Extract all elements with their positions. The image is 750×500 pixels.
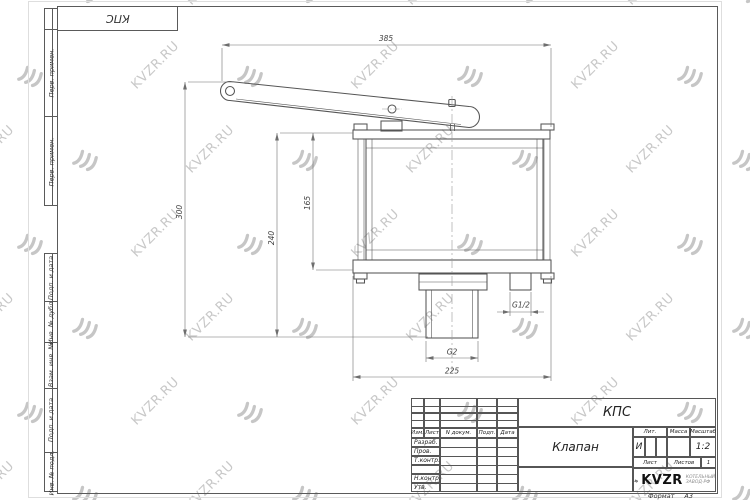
margin-label: Инв. № дубл. bbox=[47, 299, 55, 343]
tb-massa-value bbox=[667, 437, 690, 457]
dim-height-total: 300 bbox=[175, 205, 184, 220]
margin-label: Перв. примен. bbox=[47, 48, 55, 97]
drawing-sheet: KVZR.RUKVZR.RUKVZR.RUKVZR.RUKVZR.RUKVZR.… bbox=[0, 0, 750, 500]
tb-col-podp: Подп. bbox=[477, 428, 497, 438]
tb-rule bbox=[440, 483, 518, 484]
dim-flange-width: 225 bbox=[445, 367, 460, 376]
bolt-head-right bbox=[541, 124, 554, 130]
tb-rule bbox=[411, 406, 518, 414]
bolt-nut-left bbox=[354, 273, 367, 279]
margin-label: Перв. примен. bbox=[47, 137, 55, 186]
tb-row-utv: Утв. bbox=[411, 483, 440, 492]
dim-height-to-outlet: 240 bbox=[267, 231, 276, 246]
lever-hole bbox=[226, 87, 235, 96]
tb-list-label: Лист bbox=[633, 457, 667, 468]
tb-empty bbox=[518, 467, 633, 492]
tb-rule bbox=[411, 413, 518, 421]
bolt-head-left bbox=[354, 124, 367, 130]
tb-empty bbox=[645, 437, 656, 457]
margin-cell-empty bbox=[45, 9, 57, 30]
centerlines bbox=[382, 96, 452, 372]
tb-listov-label: Листов bbox=[667, 457, 701, 468]
dimensions bbox=[183, 43, 551, 381]
tb-row-nkontr: Н.контр. bbox=[411, 474, 440, 483]
margin-label: Взам. инв. № bbox=[47, 343, 55, 387]
kvzr-logo-icon bbox=[634, 473, 638, 488]
tb-lit-value: И bbox=[633, 437, 645, 457]
kvzr-logo-subline2: ЗАВОД-РФ bbox=[686, 480, 710, 485]
margin-cell-podp-data-2: Подп. и дата bbox=[45, 388, 57, 453]
margin-label: Подп. и дата bbox=[47, 398, 55, 442]
tb-designation: КПС bbox=[518, 398, 716, 427]
tb-row-blank bbox=[411, 465, 440, 474]
tb-company-cell: KVZR КОТЕЛЬНЫЙ ЗАВОД-РФ bbox=[633, 468, 716, 492]
bolt-tip-right bbox=[544, 279, 552, 283]
tb-massa-label: Масса bbox=[667, 427, 690, 437]
margin-cell-podp-data-1: Подп. и дата bbox=[45, 254, 57, 302]
margin-label: Подп. и дата bbox=[47, 255, 55, 299]
title-block: Изм. Лист N докум. Подп. Дата Разраб. Пр… bbox=[411, 398, 716, 492]
margin-label: Инв. № подл. bbox=[47, 450, 55, 495]
dim-drain-thread: G1/2 bbox=[512, 301, 530, 310]
corner-designation-stamp: КПС bbox=[57, 6, 178, 31]
tb-part-name: Клапан bbox=[518, 427, 633, 467]
format-note: Формат А3 bbox=[648, 492, 693, 500]
lever-inner-edge bbox=[236, 99, 461, 125]
valve-body bbox=[366, 139, 543, 260]
kvzr-logo-subline1: КОТЕЛЬНЫЙ bbox=[686, 475, 715, 480]
tb-masshtab-value: 1:2 bbox=[690, 437, 716, 457]
drain-pipe-g12 bbox=[510, 273, 531, 290]
kvzr-logo-text: KVZR bbox=[641, 473, 683, 488]
tb-row-prov: Пров. bbox=[411, 447, 440, 456]
valve-parts bbox=[221, 82, 555, 339]
lever-arm bbox=[221, 82, 480, 128]
margin-cell-perv-primen-1: Перв. примен. bbox=[45, 29, 57, 117]
tb-rule bbox=[440, 465, 518, 466]
format-value: А3 bbox=[684, 492, 693, 500]
tb-empty bbox=[656, 437, 667, 457]
tb-col-list: Лист bbox=[424, 428, 440, 438]
dimension-labels: 385 300 240 165 G2 225 G1/2 bbox=[175, 34, 530, 376]
tb-col-data: Дата bbox=[497, 428, 518, 438]
margin-cell-inv-podl: Инв. № подл. bbox=[45, 452, 57, 493]
corner-designation-text: КПС bbox=[106, 12, 130, 25]
tb-rule bbox=[440, 447, 518, 448]
tb-lit-label: Лит. bbox=[633, 427, 667, 437]
tb-row-razrab: Разраб. bbox=[411, 438, 440, 447]
margin-strip-top: Перв. примен. Перв. примен. bbox=[44, 8, 58, 206]
margin-cell-inv-dubl: Инв. № дубл. bbox=[45, 301, 57, 343]
tb-col-ndokum: N докум. bbox=[440, 428, 477, 438]
bolt-nut-right bbox=[541, 273, 554, 279]
margin-cell-perv-primen-2: Перв. примен. bbox=[45, 116, 57, 207]
tb-col-izm: Изм. bbox=[411, 428, 424, 438]
tb-rule bbox=[440, 474, 518, 475]
dim-lever-length: 385 bbox=[379, 34, 394, 43]
tb-listov-value: 1 bbox=[701, 457, 716, 468]
tb-row-tkontr: Т.контр. bbox=[411, 456, 440, 465]
bolt-tip-left bbox=[357, 279, 365, 283]
dim-outlet-thread: G2 bbox=[447, 348, 458, 357]
tb-masshtab-label: Масштаб bbox=[690, 427, 716, 437]
margin-cell-vzam-inv: Взам. инв. № bbox=[45, 342, 57, 389]
kvzr-logo-subtext: КОТЕЛЬНЫЙ ЗАВОД-РФ bbox=[686, 475, 715, 486]
margin-strip-bottom: Подп. и дата Инв. № дубл. Взам. инв. № П… bbox=[44, 253, 58, 492]
dim-body-height: 165 bbox=[303, 196, 312, 211]
format-label: Формат bbox=[648, 492, 674, 500]
tb-rule bbox=[440, 456, 518, 457]
